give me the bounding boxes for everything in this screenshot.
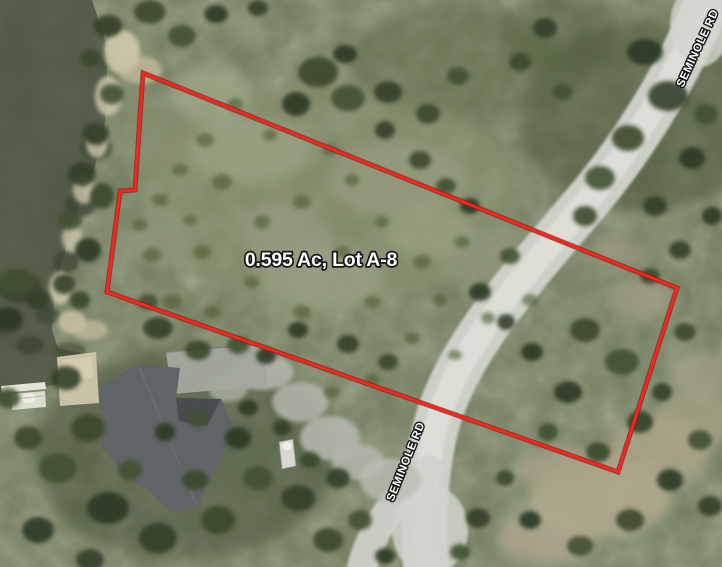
aerial-map-view: 0.595 Ac, Lot A-8 SEMINOLE RD SEMINOLE R… [0, 0, 722, 567]
satellite-image: 0.595 Ac, Lot A-8 SEMINOLE RD SEMINOLE R… [0, 0, 722, 567]
parcel-area-label: 0.595 Ac, Lot A-8 [245, 249, 398, 271]
